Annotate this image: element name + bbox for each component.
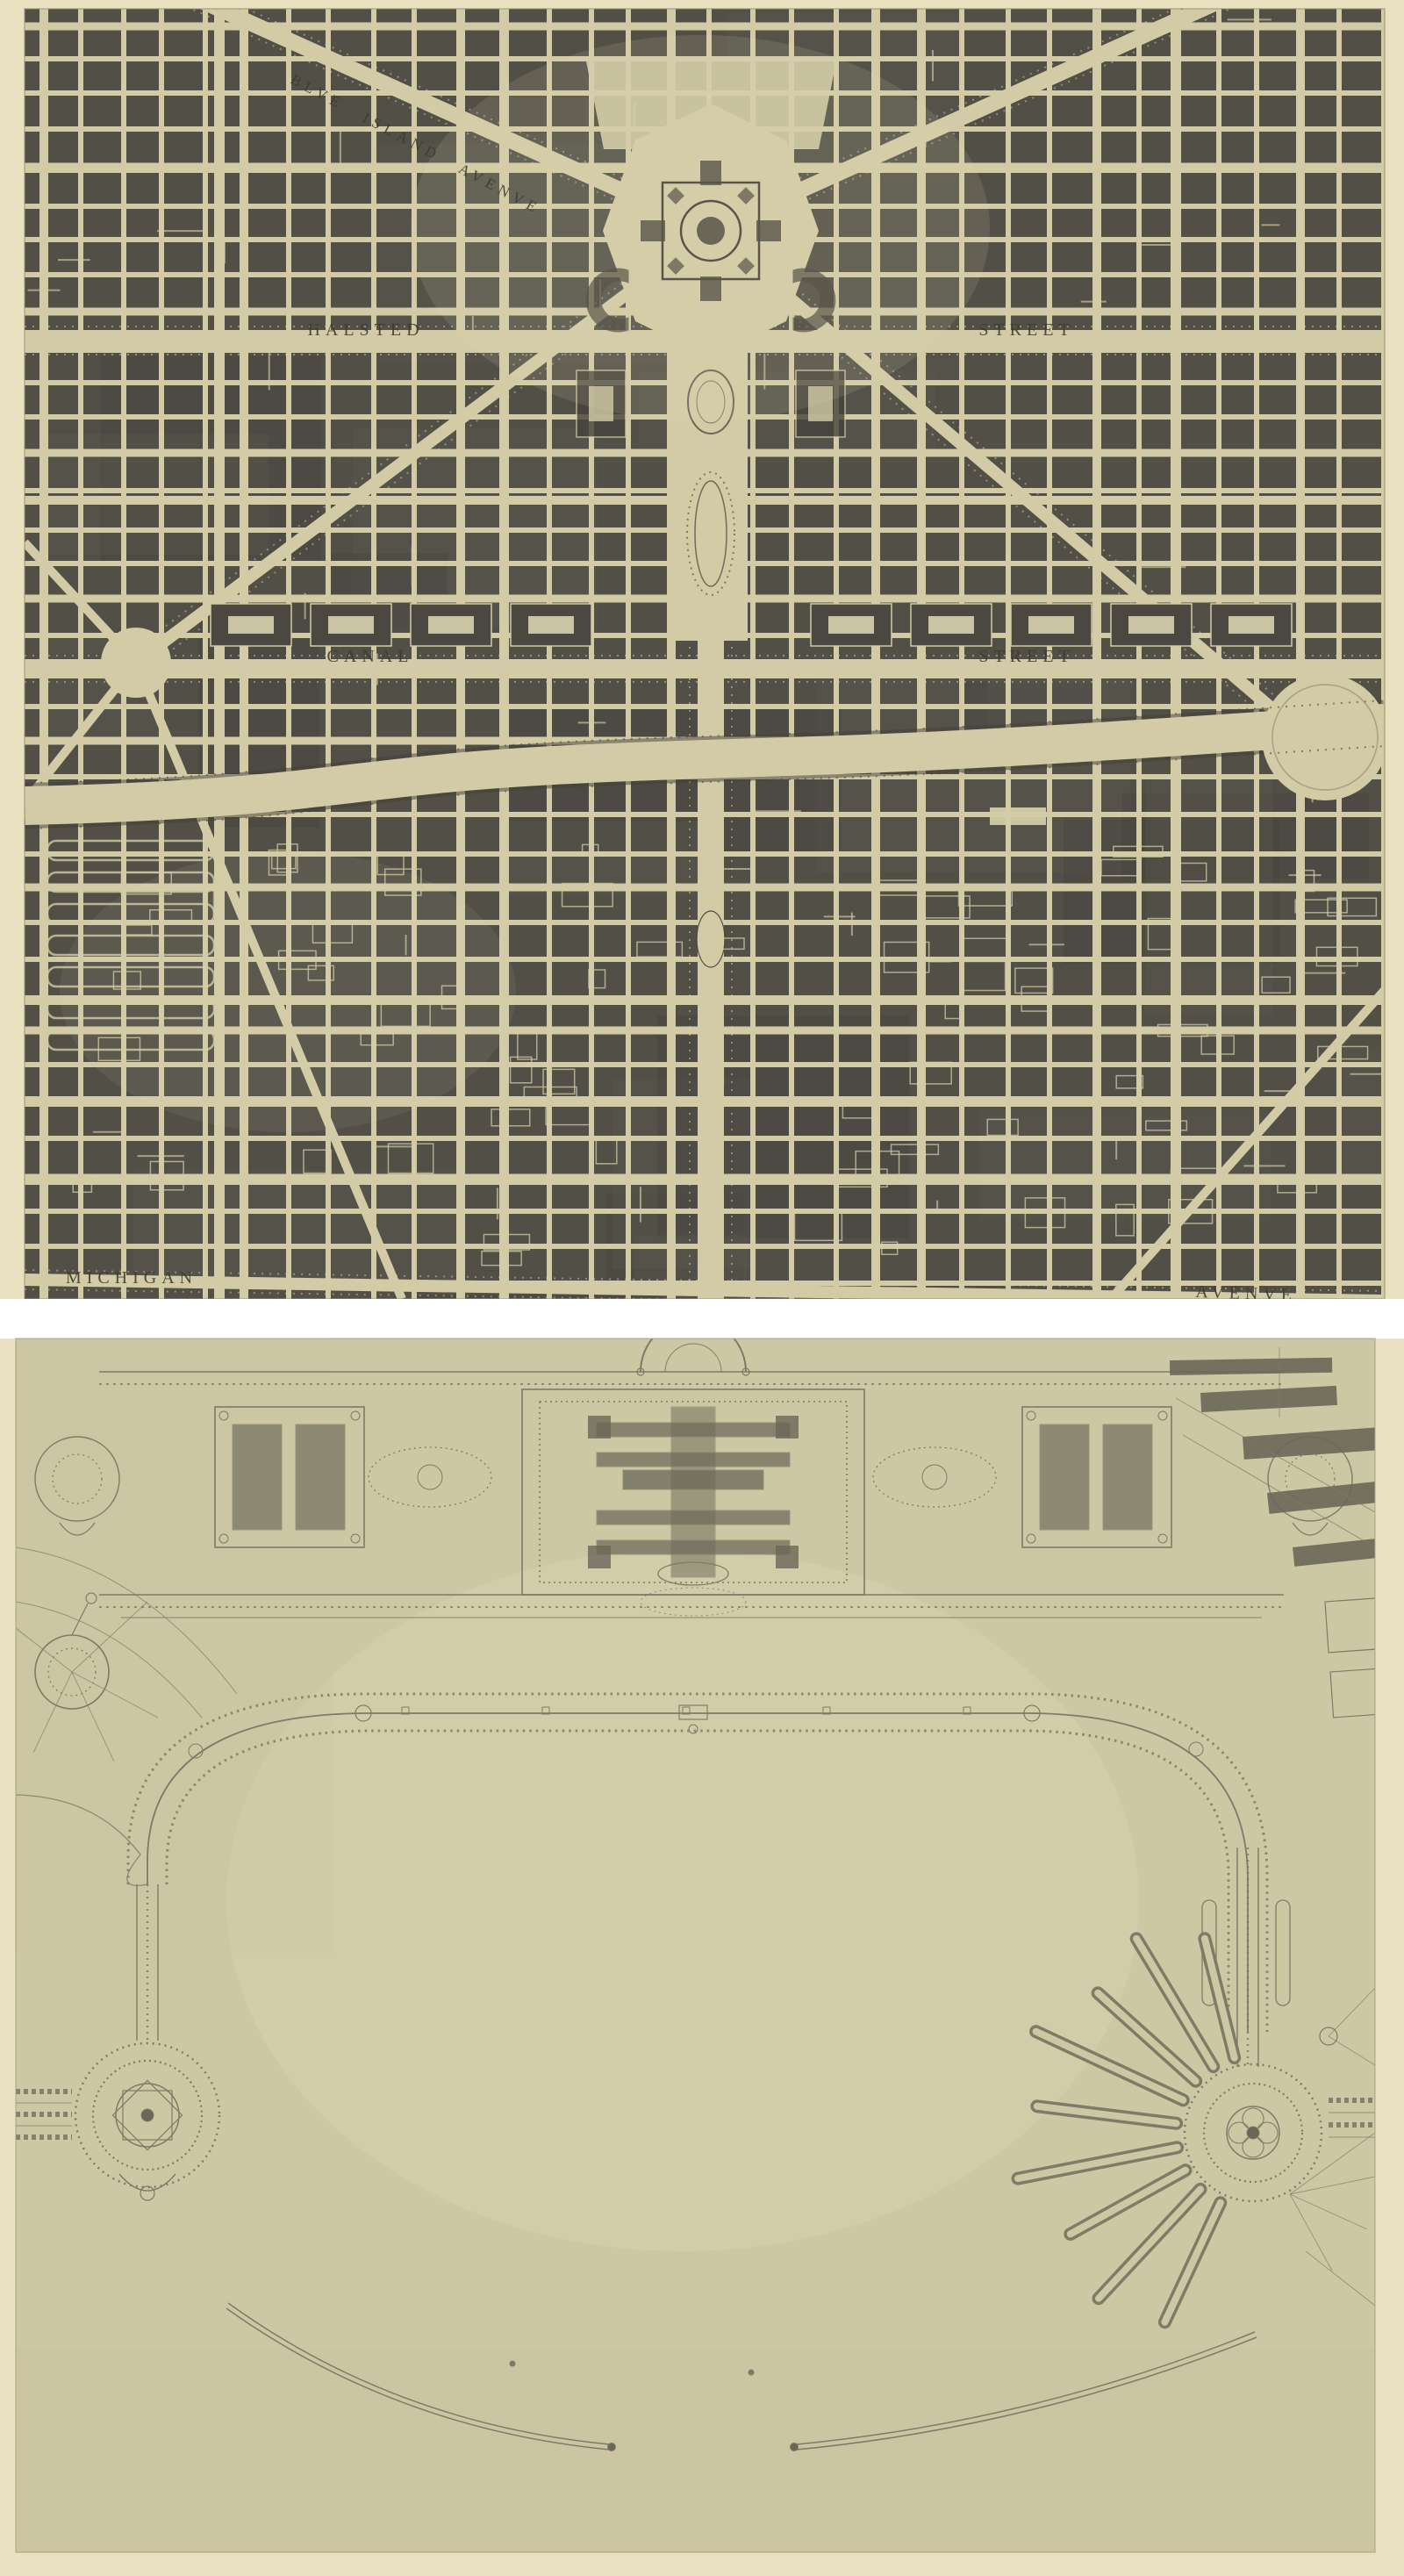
harbor-plan-plate xyxy=(16,1338,1375,2552)
street-grid-map: BLVE ISLAND AVENVE HALSTED STREET CANAL … xyxy=(25,9,1385,1299)
harbor-plan-art xyxy=(16,1338,1375,2552)
street-label-michigan-avenue-word: AVENVE xyxy=(1195,1282,1297,1299)
street-grid-art xyxy=(25,9,1385,1299)
street-label-canal: CANAL xyxy=(327,647,414,666)
city-plan-plate: BLVE ISLAND AVENVE HALSTED STREET CANAL … xyxy=(25,9,1385,1299)
harbor-plan-map xyxy=(16,1338,1375,2552)
street-label-halsted: HALSTED xyxy=(307,320,424,340)
plate-separator xyxy=(0,1299,1404,1338)
street-label-canal-street-word: STREET xyxy=(978,647,1074,666)
street-label-halsted-street-word: STREET xyxy=(978,320,1074,340)
street-label-michigan: MICHIGAN xyxy=(66,1268,197,1288)
